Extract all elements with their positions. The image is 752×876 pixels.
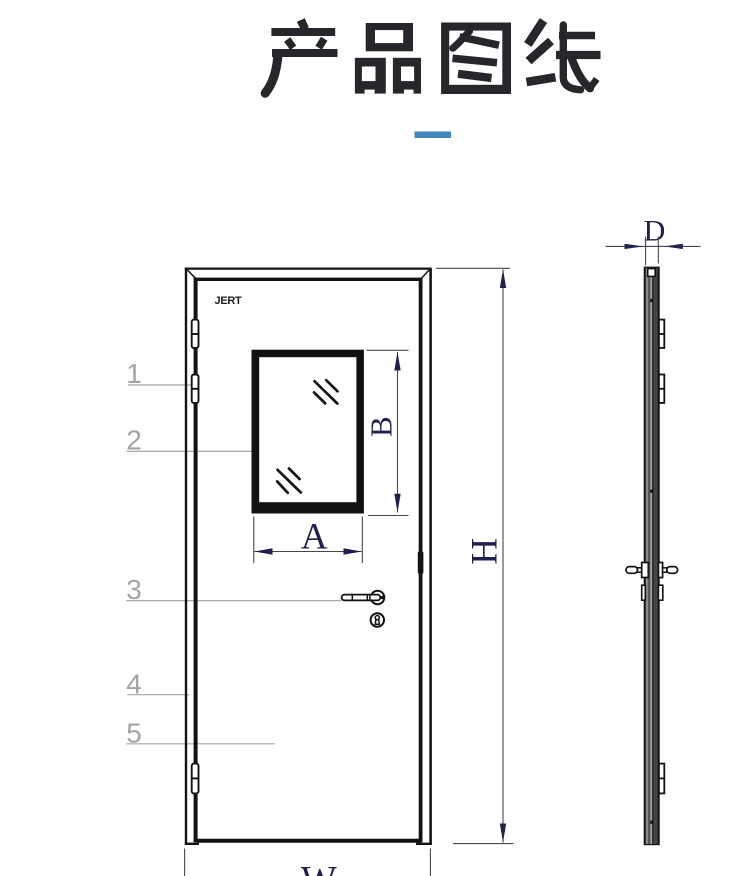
svg-text:1: 1 — [126, 358, 142, 389]
svg-text:2: 2 — [126, 425, 142, 456]
svg-text:JERT: JERT — [215, 295, 242, 307]
svg-text:H: H — [465, 538, 506, 565]
svg-text:3: 3 — [126, 574, 142, 605]
svg-text:D: D — [644, 215, 666, 248]
svg-text:B: B — [364, 416, 399, 437]
svg-text:A: A — [301, 517, 328, 558]
svg-text:4: 4 — [126, 669, 142, 700]
svg-text:5: 5 — [126, 718, 142, 749]
svg-text:W: W — [301, 859, 337, 876]
